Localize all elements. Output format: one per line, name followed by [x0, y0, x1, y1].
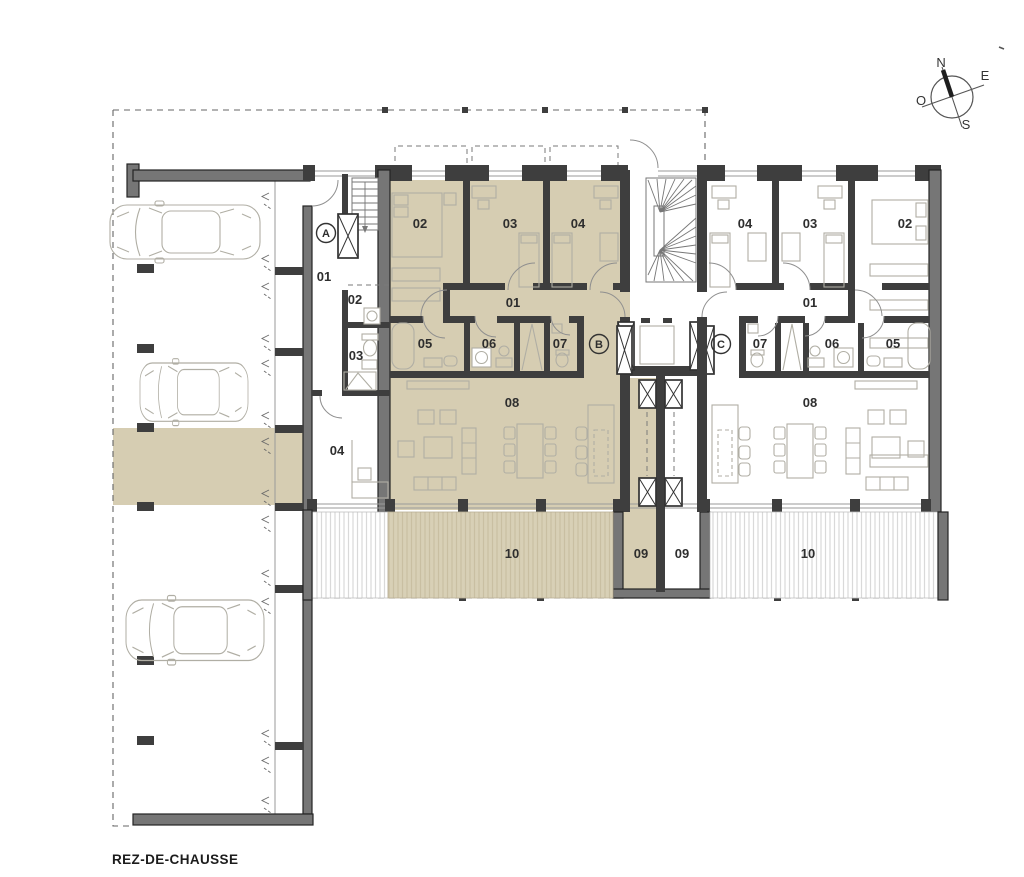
apt-left-bedroom3-label: 04 — [571, 216, 586, 231]
terrace-left — [388, 512, 613, 598]
apt-right-entry-label: 09 — [675, 546, 689, 561]
compass-west-label: O — [916, 93, 926, 108]
parking-columns — [137, 264, 154, 745]
floor-plan-page: 01 02 03 04 02 03 04 01 05 06 07 08 10 0… — [0, 0, 1024, 877]
car-1 — [110, 201, 260, 263]
annex-shaft — [338, 214, 358, 258]
winder-staircase — [646, 178, 696, 282]
apt-right-hall-label: 01 — [803, 295, 817, 310]
apt-left-bath1-label: 05 — [418, 336, 432, 351]
apt-left-hall-label: 01 — [506, 295, 520, 310]
apt-right-living-label: 08 — [803, 395, 817, 410]
terrace-right — [710, 512, 938, 598]
stairwell-entry-door-arc — [630, 140, 658, 168]
apt-right-bath1-label: 05 — [886, 336, 900, 351]
compass-needle — [943, 70, 952, 97]
car-3 — [126, 596, 264, 665]
compass-east-label: E — [981, 68, 990, 83]
floor-plan-svg: 01 02 03 04 02 03 04 01 05 06 07 08 10 0… — [0, 0, 1024, 877]
compass: N E S O — [916, 47, 1004, 132]
apt-right-bedroom2-label: 03 — [803, 216, 817, 231]
terrace-annex — [312, 512, 388, 598]
apt-right-terrace-label: 10 — [801, 546, 815, 561]
apt-right-bath3-label: 07 — [753, 336, 767, 351]
apt-left-bedroom2-label: 03 — [503, 216, 517, 231]
annex-wc-label: 03 — [349, 348, 363, 363]
apt-left-bath3-label: 07 — [553, 336, 567, 351]
apt-left-bath2-label: 06 — [482, 336, 496, 351]
svg-text:C: C — [717, 339, 725, 351]
apt-right-bath2-label: 06 — [825, 336, 839, 351]
annex-office-door-arc — [320, 396, 342, 418]
map-tick — [999, 47, 1004, 49]
annex-office-label: 04 — [330, 443, 345, 458]
axis-marker-a: A — [317, 224, 336, 243]
compass-north-label: N — [936, 55, 945, 70]
annex-laundry-fixtures — [364, 308, 380, 324]
svg-text:B: B — [595, 339, 603, 351]
apt-left-entry-label: 09 — [634, 546, 648, 561]
parking-door-arc — [312, 180, 338, 206]
apt-left-bedroom1-label: 02 — [413, 216, 427, 231]
plan-title: REZ-DE-CHAUSSE — [112, 852, 238, 867]
annex-laundry-label: 02 — [348, 292, 362, 307]
apt-left-terrace-label: 10 — [505, 546, 519, 561]
apt-right-bedroom3-label: 04 — [738, 216, 753, 231]
apt-left-living-label: 08 — [505, 395, 519, 410]
car-2 — [140, 359, 248, 426]
svg-text:A: A — [322, 228, 330, 240]
compass-south-label: S — [962, 117, 971, 132]
annex-corridor-label: 01 — [317, 269, 331, 284]
apt-right-bedroom1-label: 02 — [898, 216, 912, 231]
